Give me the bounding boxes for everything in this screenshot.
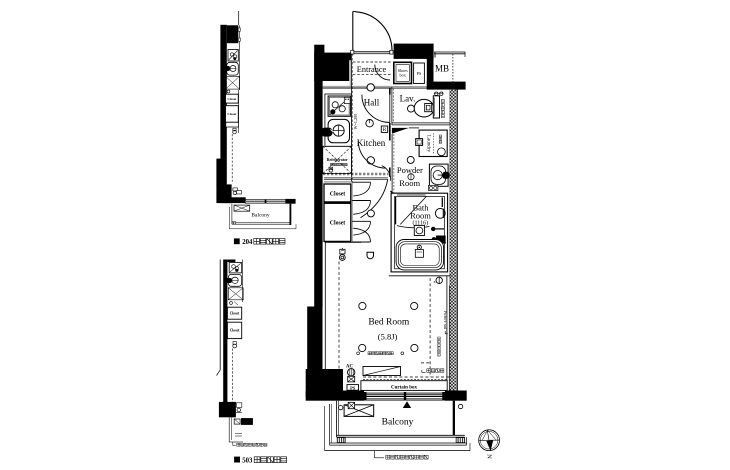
svg-text:Closet: Closet xyxy=(227,97,237,101)
svg-text:MB: MB xyxy=(435,64,449,74)
svg-text:204: 204 xyxy=(242,239,253,246)
svg-text:Closet: Closet xyxy=(230,329,240,333)
svg-text:Kitchen: Kitchen xyxy=(357,138,386,148)
svg-text:Balcony: Balcony xyxy=(251,212,270,218)
svg-text:Closet: Closet xyxy=(227,112,237,116)
svg-text:PS: PS xyxy=(417,71,422,76)
svg-text:Laundry: Laundry xyxy=(425,135,430,152)
svg-text:Bed Room: Bed Room xyxy=(368,318,410,328)
svg-text:box: box xyxy=(400,73,407,78)
svg-text:PS: PS xyxy=(350,385,356,390)
svg-text:Closet: Closet xyxy=(230,312,240,316)
svg-text:N: N xyxy=(486,454,493,459)
svg-text:503: 503 xyxy=(242,457,253,464)
svg-text:Hall: Hall xyxy=(364,97,380,107)
svg-text:Curtain box: Curtain box xyxy=(391,385,417,390)
svg-text:Refrigerator: Refrigerator xyxy=(327,158,348,162)
svg-text:z: z xyxy=(434,279,436,284)
svg-text:Entrance: Entrance xyxy=(357,65,387,74)
svg-text:Room: Room xyxy=(410,210,431,220)
svg-text:Closet: Closet xyxy=(330,192,346,198)
svg-text:Balcony: Balcony xyxy=(382,417,414,427)
svg-text:R: R xyxy=(383,127,387,133)
svg-text:Lav.: Lav. xyxy=(400,94,416,104)
svg-text:(5.8J): (5.8J) xyxy=(378,331,398,341)
svg-text:Closet: Closet xyxy=(330,221,346,227)
svg-text:Room: Room xyxy=(399,178,420,188)
